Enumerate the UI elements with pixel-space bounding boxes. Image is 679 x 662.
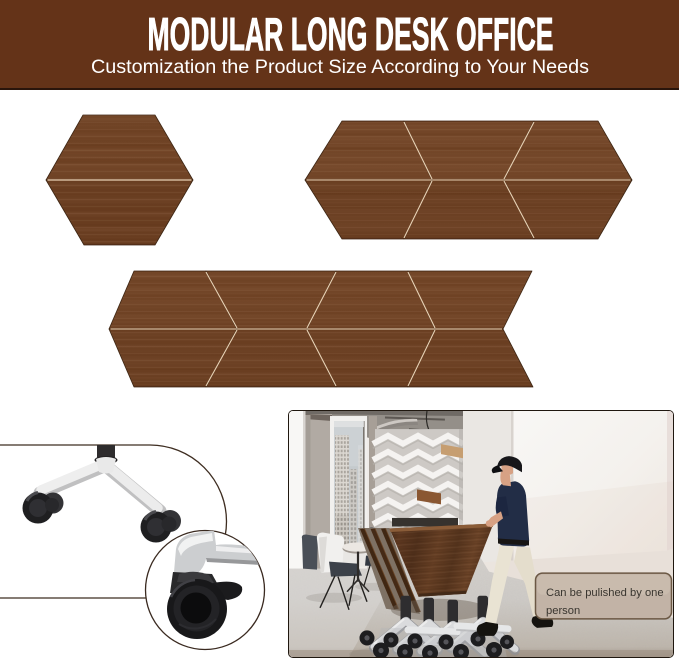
svg-text:Can be pulished by one: Can be pulished by one [546, 586, 664, 598]
svg-text:person: person [546, 604, 580, 616]
